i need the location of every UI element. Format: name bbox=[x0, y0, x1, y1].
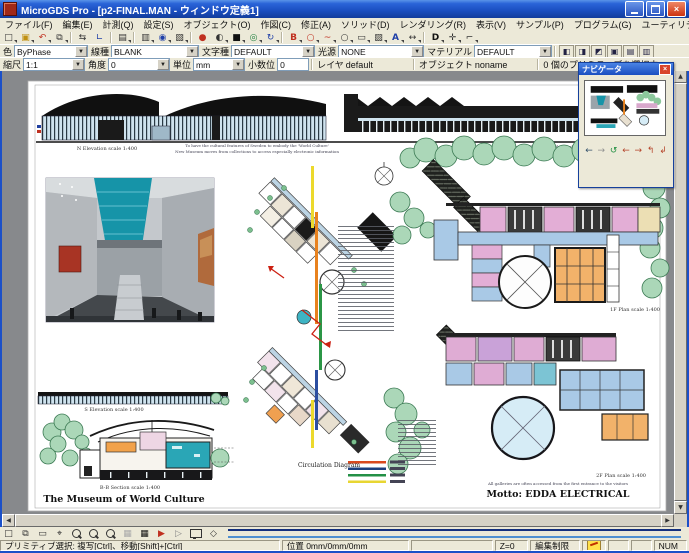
render-icon[interactable]: ● bbox=[194, 32, 211, 44]
caption-plan-upper: 1F Plan scale 1:400 bbox=[610, 307, 660, 313]
window-set-icon[interactable]: ⧉ bbox=[51, 32, 68, 44]
view-slider[interactable] bbox=[228, 529, 681, 538]
navigator-thumbnail[interactable] bbox=[584, 80, 666, 136]
decimal-label: 小数位 bbox=[248, 58, 275, 71]
menu-edit[interactable]: 編集(E) bbox=[58, 18, 98, 31]
menu-draw[interactable]: 作図(C) bbox=[256, 18, 297, 31]
phase-select-icon[interactable]: ◇ bbox=[205, 528, 222, 540]
layer-value: default bbox=[346, 60, 373, 70]
status-z: Z=0 bbox=[495, 540, 528, 551]
select-overlap-icon[interactable]: ⧉ bbox=[17, 528, 34, 540]
material-sphere-icon[interactable]: ◐ bbox=[211, 32, 228, 44]
menu-object[interactable]: オブジェクト(O) bbox=[179, 18, 256, 31]
caption-s-elevation: S Elevation scale 1:400 bbox=[84, 407, 143, 413]
chevron-down-icon[interactable]: ▼ bbox=[232, 59, 244, 70]
tools-icon[interactable]: ✛ bbox=[444, 32, 461, 44]
navigator-title: ナビゲータ bbox=[582, 64, 622, 75]
main-toolbar: □ ▣ ↶ ⧉ ⇆ ∟ ▤ ▥ ◉ ▧ ● ◐ ■ ◎ ↻ B ○ ~ ○ ▭ … bbox=[0, 31, 689, 44]
menu-program[interactable]: プログラム(G) bbox=[569, 18, 637, 31]
perspective-rendering bbox=[46, 178, 214, 322]
pencil-icon bbox=[587, 540, 601, 551]
chevron-down-icon[interactable]: ▼ bbox=[72, 59, 84, 70]
menu-modify[interactable]: 修正(A) bbox=[296, 18, 336, 31]
status-hint: プリミティブ選択: 複写[Ctrl]、移動[Shift]+[Ctrl] bbox=[0, 540, 280, 551]
note-top-left-1: To have the cultural features of Sweden … bbox=[185, 143, 329, 148]
select-window-icon[interactable]: ▭ bbox=[34, 528, 51, 540]
scale-label: 縮尺 bbox=[3, 58, 21, 71]
phase-icon[interactable]: B bbox=[285, 32, 302, 44]
menu-measure[interactable]: 計測(Q) bbox=[98, 18, 139, 31]
polyline-icon[interactable]: ∟ bbox=[91, 32, 108, 44]
note-top-left-2: New Museum moves from collections to acc… bbox=[175, 149, 339, 154]
scroll-right-icon[interactable]: ▶ bbox=[661, 514, 674, 527]
grid-on-icon[interactable]: ▦ bbox=[136, 528, 153, 540]
hatch-icon[interactable]: ▨ bbox=[370, 32, 387, 44]
new-icon[interactable]: □ bbox=[0, 32, 17, 44]
nav-back-button[interactable]: ← bbox=[584, 145, 594, 156]
window-title: MicroGDS Pro - [p2-FINAL.MAN - ウィンドウ定義1] bbox=[21, 2, 259, 17]
scrollbar-corner bbox=[674, 514, 687, 527]
vertical-scroll-thumb[interactable] bbox=[674, 83, 687, 501]
drag-copy-icon[interactable]: ⇆ bbox=[74, 32, 91, 44]
chevron-down-icon[interactable]: ▼ bbox=[302, 46, 314, 57]
caption-bb-section: B-B Section scale 1:400 bbox=[100, 485, 160, 491]
attach-icon[interactable]: ◉ bbox=[154, 32, 171, 44]
scale-combo[interactable]: 1:1▼ bbox=[23, 58, 85, 71]
navigator-close-button[interactable]: × bbox=[659, 64, 671, 75]
position-value: 0mm/0mm/0mm bbox=[306, 541, 367, 551]
circle-icon[interactable]: ○ bbox=[302, 32, 319, 44]
status-cell-1 bbox=[608, 540, 629, 551]
position-label: 位置 bbox=[287, 540, 304, 551]
print-preview-icon[interactable]: ▤ bbox=[114, 32, 131, 44]
database-icon[interactable]: D bbox=[427, 32, 444, 44]
angle-label: 角度 bbox=[88, 58, 106, 71]
app-window: MicroGDS Pro - [p2-FINAL.MAN - ウィンドウ定義1]… bbox=[0, 0, 689, 551]
select-primitive-icon[interactable]: □ bbox=[0, 528, 17, 540]
scroll-left-icon[interactable]: ◀ bbox=[2, 514, 15, 527]
display-settings-icon[interactable] bbox=[190, 529, 202, 538]
chevron-down-icon[interactable]: ▼ bbox=[157, 59, 169, 70]
chevron-down-icon[interactable]: ▼ bbox=[539, 46, 551, 57]
nav-refresh-button[interactable]: ↺ bbox=[609, 145, 619, 156]
camera-view-icon[interactable]: ◎ bbox=[245, 32, 262, 44]
navigator-palette: ナビゲータ × ← → bbox=[578, 62, 674, 188]
zoom-out-icon[interactable] bbox=[106, 529, 115, 538]
unit-label: 単位 bbox=[173, 58, 191, 71]
maximize-button[interactable] bbox=[646, 1, 665, 17]
room-legend-list bbox=[338, 226, 394, 332]
title-bar[interactable]: MicroGDS Pro - [p2-FINAL.MAN - ウィンドウ定義1]… bbox=[0, 0, 689, 18]
object-label: オブジェクト bbox=[419, 58, 473, 71]
dimension-icon[interactable]: ↔ bbox=[404, 32, 421, 44]
horizontal-scrollbar[interactable]: ◀ ▶ bbox=[2, 514, 674, 527]
motto-text: Motto: EDDA ELECTRICAL bbox=[487, 489, 630, 500]
undo-icon[interactable]: ↶ bbox=[34, 32, 51, 44]
maximize-icon bbox=[651, 5, 660, 14]
ellipse-icon[interactable]: ○ bbox=[336, 32, 353, 44]
chevron-down-icon[interactable]: ▼ bbox=[186, 46, 198, 57]
status-spacer bbox=[411, 540, 493, 551]
rectangle-icon[interactable]: ▭ bbox=[353, 32, 370, 44]
redraw-icon[interactable]: ▶ bbox=[153, 528, 170, 540]
solid-box-icon[interactable]: ■ bbox=[228, 32, 245, 44]
nav-right-button[interactable]: → bbox=[633, 145, 643, 156]
layer-label: レイヤ bbox=[317, 58, 344, 71]
caption-n-elevation: N Elevation scale 1:400 bbox=[77, 146, 137, 152]
menu-rendering[interactable]: レンダリング(R) bbox=[395, 18, 472, 31]
horizontal-scroll-thumb[interactable] bbox=[15, 514, 663, 527]
status-position: 位置 0mm/0mm/0mm bbox=[282, 540, 409, 551]
zoom-icon[interactable] bbox=[72, 529, 81, 538]
chevron-down-icon[interactable]: ▼ bbox=[411, 46, 423, 57]
museum-title-text: The Museum of World Culture bbox=[43, 494, 204, 505]
menu-view[interactable]: 表示(V) bbox=[471, 18, 511, 31]
navigator-thumbnail-image bbox=[585, 81, 665, 135]
key-icon[interactable]: ⌐ bbox=[461, 32, 478, 44]
vertical-scrollbar[interactable]: ▲ ▼ bbox=[674, 70, 687, 514]
note-bottom-right: All galleries are often accessed from th… bbox=[487, 481, 628, 486]
menu-sample[interactable]: サンプル(P) bbox=[511, 18, 569, 31]
paste-icon[interactable]: ▧ bbox=[171, 32, 188, 44]
close-icon: × bbox=[674, 5, 679, 14]
nav-down-button[interactable]: ↲ bbox=[658, 145, 668, 156]
menu-bar: ファイル(F) 編集(E) 計測(Q) 設定(S) オブジェクト(O) 作図(C… bbox=[0, 18, 689, 32]
pointer-icon[interactable]: ▷ bbox=[170, 528, 187, 540]
unit-combo[interactable]: mm▼ bbox=[193, 58, 245, 71]
zoom-in-icon[interactable] bbox=[89, 529, 98, 538]
status-edit-limit[interactable]: 編集制限 bbox=[530, 540, 580, 551]
copy-icon[interactable]: ▥ bbox=[137, 32, 154, 44]
decimal-input[interactable]: 0 bbox=[277, 58, 309, 71]
status-num-lock: NUM bbox=[654, 540, 687, 551]
app-icon bbox=[3, 2, 17, 16]
ground-floor-list bbox=[398, 420, 436, 468]
snap-target-icon[interactable]: ⌖ bbox=[51, 528, 68, 540]
angle-combo[interactable]: 0▼ bbox=[108, 58, 170, 71]
selection-toolbar: □ ⧉ ▭ ⌖ ▦ ▦ ▶ ▷ ◇ bbox=[0, 527, 689, 540]
status-cell-2 bbox=[631, 540, 652, 551]
scroll-up-icon[interactable]: ▲ bbox=[674, 70, 687, 83]
menu-solid[interactable]: ソリッド(D) bbox=[336, 18, 395, 31]
window-border-left bbox=[0, 18, 2, 551]
elevation-south bbox=[38, 392, 229, 405]
chevron-down-icon[interactable]: ▼ bbox=[75, 46, 87, 57]
status-bar: プリミティブ選択: 複写[Ctrl]、移動[Shift]+[Ctrl] 位置 0… bbox=[0, 540, 689, 553]
minimize-icon bbox=[631, 9, 638, 14]
nav-left-button[interactable]: ← bbox=[621, 145, 631, 156]
rotate-view-icon[interactable]: ↻ bbox=[262, 32, 279, 44]
menu-file[interactable]: ファイル(F) bbox=[0, 18, 58, 31]
nav-forward-button[interactable]: → bbox=[596, 145, 606, 156]
arc-icon[interactable]: ~ bbox=[319, 32, 336, 44]
open-icon[interactable]: ▣ bbox=[17, 32, 34, 44]
menu-settings[interactable]: 設定(S) bbox=[139, 18, 179, 31]
close-button[interactable]: × bbox=[667, 1, 686, 17]
scroll-down-icon[interactable]: ▼ bbox=[674, 501, 687, 514]
grid-off-icon[interactable]: ▦ bbox=[119, 528, 136, 540]
object-value: noname bbox=[475, 60, 508, 70]
edit-limit-indicator[interactable] bbox=[582, 540, 606, 551]
minimize-button[interactable] bbox=[625, 1, 644, 17]
nav-up-button[interactable]: ↰ bbox=[646, 145, 656, 156]
caption-plan-lower: 2F Plan scale 1:400 bbox=[596, 473, 646, 479]
menu-utility[interactable]: ユーティリティ(U) bbox=[636, 18, 689, 31]
text-icon[interactable]: A bbox=[387, 32, 404, 44]
style-toolbar: 色 ByPhase▼ 線種 BLANK▼ 文字種 DEFAULT▼ 光源 NON… bbox=[0, 44, 689, 58]
navigator-title-bar[interactable]: ナビゲータ × bbox=[579, 63, 673, 75]
